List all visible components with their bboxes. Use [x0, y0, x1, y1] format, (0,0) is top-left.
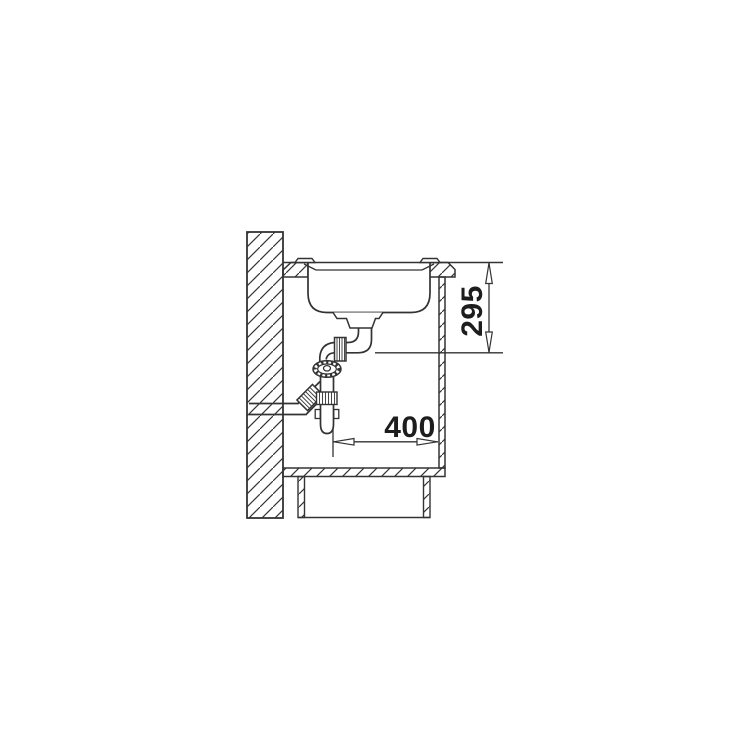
siphon-trap: [313, 328, 372, 434]
drain-outlet: [333, 313, 383, 329]
plinth: [298, 477, 430, 518]
trap-valve-nut: [313, 361, 341, 378]
technical-drawing-page: 295 400: [0, 0, 750, 750]
trap-lug-right: [334, 410, 339, 419]
arrow-left-icon: [334, 439, 354, 446]
coupling-nut-horizontal: [335, 338, 347, 362]
dim-400-label: 400: [384, 411, 436, 444]
trap-lug-left: [315, 410, 320, 419]
dimension-400: 400: [333, 411, 438, 457]
dim-295-label: 295: [456, 285, 489, 337]
coupling-nut-vertical: [317, 392, 338, 405]
wall-section: [247, 232, 283, 518]
arrow-up-icon: [486, 263, 493, 284]
cabinet-bottom-panel: [283, 468, 445, 477]
cabinet-side-panel: [439, 277, 445, 468]
sink-installation-diagram: 295 400: [0, 0, 750, 750]
